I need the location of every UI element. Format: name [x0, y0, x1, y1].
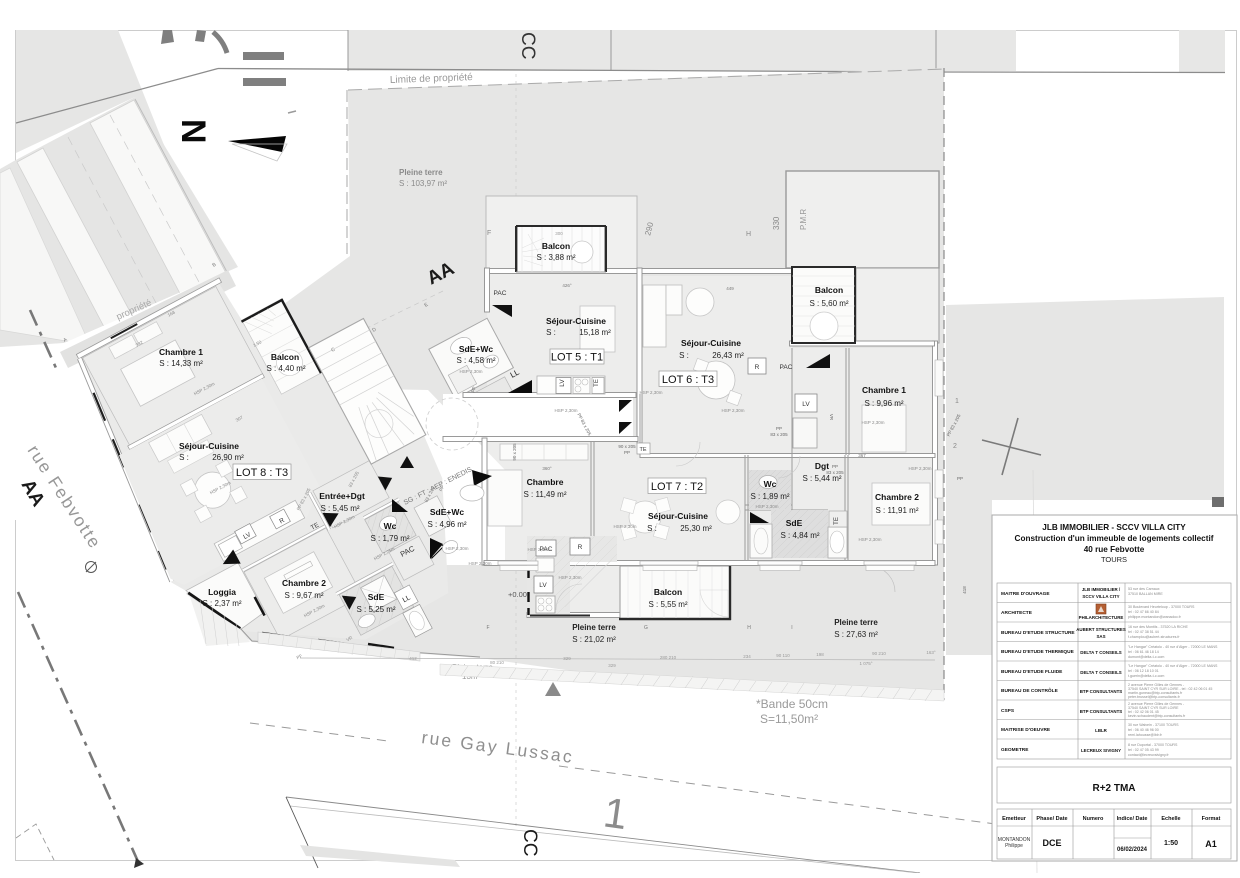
svg-text:449: 449 — [726, 286, 734, 291]
svg-text:HSP 2,30m: HSP 2,30m — [460, 369, 483, 374]
svg-text:198: 198 — [816, 652, 824, 657]
svg-text:CC: CC — [517, 32, 538, 59]
svg-text:tel : 06 61 46 18 14: tel : 06 61 46 18 14 — [1128, 650, 1159, 654]
svg-text:S : 1,79 m²: S : 1,79 m² — [370, 534, 409, 543]
svg-text:PAC: PAC — [494, 290, 507, 297]
svg-text:DELTA T CONSEILS: DELTA T CONSEILS — [1080, 670, 1121, 675]
svg-text:S : 21,02 m²: S : 21,02 m² — [572, 635, 616, 644]
svg-text:Dgt: Dgt — [815, 461, 829, 471]
svg-text:Séjour-Cuisine: Séjour-Cuisine — [546, 316, 606, 326]
svg-text:Format: Format — [1202, 816, 1221, 822]
svg-text:S : 1,89 m²: S : 1,89 m² — [750, 492, 789, 501]
svg-text:15,18 m²: 15,18 m² — [579, 328, 611, 337]
svg-text:HSP 2,30m: HSP 2,30m — [862, 420, 885, 425]
svg-text:tel : 06 40 46 96 00: tel : 06 40 46 96 00 — [1128, 728, 1159, 732]
svg-text:S :: S : — [179, 453, 189, 462]
svg-text:Emetteur: Emetteur — [1002, 816, 1027, 822]
svg-text:Séjour-Cuisine: Séjour-Cuisine — [681, 338, 741, 348]
svg-text:PHILARCHITECTURE: PHILARCHITECTURE — [1079, 615, 1124, 620]
svg-text:Chambre: Chambre — [527, 477, 564, 487]
svg-text:426°: 426° — [562, 283, 572, 288]
svg-text:HSP 2,30m: HSP 2,30m — [559, 575, 582, 580]
svg-text:HSP 2,30m: HSP 2,30m — [446, 546, 469, 551]
svg-text:dumont@delta-t-c.com: dumont@delta-t-c.com — [1128, 655, 1164, 659]
svg-text:S : 9,67 m²: S : 9,67 m² — [284, 591, 323, 600]
svg-text:LECREUX SIVIGNY: LECREUX SIVIGNY — [1081, 748, 1121, 753]
svg-text:HSP 2,30m: HSP 2,30m — [528, 547, 551, 552]
svg-text:2: 2 — [953, 443, 957, 450]
svg-text:S : 5,25 m²: S : 5,25 m² — [356, 605, 395, 614]
svg-text:LOT 5 : T1: LOT 5 : T1 — [551, 352, 603, 364]
svg-text:25,30 m²: 25,30 m² — [680, 524, 712, 533]
svg-text:TE: TE — [594, 379, 600, 387]
svg-text:Indice/ Date: Indice/ Date — [1117, 816, 1148, 822]
svg-text:418: 418 — [962, 586, 967, 594]
svg-text:BUREAU D'ETUDE FLUIDE: BUREAU D'ETUDE FLUIDE — [1001, 669, 1063, 675]
svg-text:+0.00: +0.00 — [508, 590, 527, 599]
svg-text:CSPS: CSPS — [1001, 708, 1015, 714]
svg-text:TE: TE — [639, 447, 646, 453]
svg-text:Philippe: Philippe — [1005, 843, 1023, 849]
svg-text:R+2 TMA: R+2 TMA — [1092, 783, 1135, 794]
svg-text:S : 3,88 m²: S : 3,88 m² — [536, 253, 575, 262]
svg-text:tel : 06 12 18 10 01: tel : 06 12 18 10 01 — [1128, 669, 1159, 673]
svg-text:S : 14,33 m²: S : 14,33 m² — [159, 359, 203, 368]
svg-text:ARCHITECTE: ARCHITECTE — [1001, 610, 1033, 616]
svg-text:S : 11,49 m²: S : 11,49 m² — [524, 490, 567, 499]
svg-text:N: N — [174, 119, 212, 144]
svg-text:53 rue des Carnaux: 53 rue des Carnaux — [1128, 587, 1160, 591]
svg-text:330: 330 — [772, 216, 781, 230]
svg-text:HSP 2,30m: HSP 2,30m — [640, 390, 663, 395]
svg-text:R: R — [578, 544, 583, 551]
svg-text:BUREAU D'ETUDE STRUCTURE: BUREAU D'ETUDE STRUCTURE — [1001, 630, 1075, 636]
svg-text:tel : 02 47 66 40 84: tel : 02 47 66 40 84 — [1128, 610, 1159, 614]
svg-text:PP: PP — [624, 450, 630, 455]
svg-text:PP: PP — [832, 464, 838, 469]
svg-text:SdE+Wc: SdE+Wc — [459, 344, 494, 354]
svg-text:8 rue Duportal - 37000 TOURS: 8 rue Duportal - 37000 TOURS — [1128, 743, 1178, 747]
svg-text:BUREAU D'ETUDE THERMIQUE: BUREAU D'ETUDE THERMIQUE — [1001, 649, 1075, 655]
svg-text:CC: CC — [519, 829, 540, 856]
svg-text:G: G — [644, 625, 648, 631]
svg-text:TE: TE — [834, 517, 840, 525]
svg-text:90 x 205: 90 x 205 — [618, 444, 636, 449]
svg-text:tel : 02 47 05 43 99: tel : 02 47 05 43 99 — [1128, 748, 1159, 752]
svg-text:SdE: SdE — [368, 592, 385, 602]
svg-text:BTP CONSULTANTS: BTP CONSULTANTS — [1080, 709, 1123, 714]
svg-text:80 210: 80 210 — [490, 660, 504, 665]
svg-text:F: F — [486, 625, 489, 631]
svg-text:S : 5,55 m²: S : 5,55 m² — [648, 600, 687, 609]
svg-text:S : 4,96 m²: S : 4,96 m² — [427, 520, 466, 529]
svg-text:DELTA T CONSEILS: DELTA T CONSEILS — [1080, 650, 1121, 655]
svg-text:I: I — [791, 625, 792, 631]
svg-text:contact@lecreuxsivigny.fr: contact@lecreuxsivigny.fr — [1128, 753, 1170, 757]
svg-text:LBLR: LBLR — [1095, 728, 1108, 733]
svg-text:06/02/2024: 06/02/2024 — [1117, 847, 1148, 853]
svg-text:83 x 205: 83 x 205 — [770, 432, 788, 437]
svg-text:PAC: PAC — [780, 364, 793, 371]
svg-text:BTP CONSULTANTS: BTP CONSULTANTS — [1080, 689, 1123, 694]
svg-text:SAS: SAS — [1096, 634, 1105, 639]
svg-text:VR: VR — [829, 414, 834, 421]
svg-text:S : 4,40 m²: S : 4,40 m² — [266, 364, 305, 373]
svg-text:26,43 m²: 26,43 m² — [712, 351, 744, 360]
svg-text:S : 9,96 m²: S : 9,96 m² — [864, 399, 903, 408]
svg-text:1 075°: 1 075° — [859, 661, 872, 666]
svg-text:S=11,50m²: S=11,50m² — [760, 712, 818, 726]
svg-text:Pleine terre: Pleine terre — [399, 168, 443, 177]
svg-text:S : 5,45 m²: S : 5,45 m² — [320, 504, 359, 513]
svg-text:S : 103,97 m²: S : 103,97 m² — [399, 179, 447, 188]
svg-text:P.M.R: P.M.R — [799, 209, 808, 230]
svg-text:S : 5,60 m²: S : 5,60 m² — [809, 299, 848, 308]
svg-text:HSP 2,30m: HSP 2,30m — [469, 561, 492, 566]
svg-text:HSP 2,30m: HSP 2,30m — [756, 504, 779, 509]
svg-text:280 210: 280 210 — [660, 655, 677, 660]
svg-text:philippe.montandon@wanadoo.fr: philippe.montandon@wanadoo.fr — [1128, 615, 1182, 619]
svg-text:300: 300 — [555, 231, 563, 236]
svg-text:90 x 205: 90 x 205 — [512, 443, 517, 461]
svg-text:Balcon: Balcon — [542, 241, 570, 251]
svg-text:Phase/ Date: Phase/ Date — [1036, 816, 1067, 822]
svg-text:90 210: 90 210 — [872, 651, 886, 656]
svg-text:f.champlou@aubert-structures.f: f.champlou@aubert-structures.fr — [1128, 635, 1180, 639]
svg-text:SdE+Wc: SdE+Wc — [430, 507, 465, 517]
svg-text:Balcon: Balcon — [815, 285, 843, 295]
svg-text:234: 234 — [743, 654, 751, 659]
svg-text:329: 329 — [563, 656, 571, 661]
svg-text:S : 4,58 m²: S : 4,58 m² — [456, 356, 495, 365]
svg-text:HSP 2,30m: HSP 2,30m — [909, 466, 932, 471]
svg-text:tel : 02 47 38 51 44: tel : 02 47 38 51 44 — [1128, 630, 1159, 634]
svg-text:HSP 2,30m: HSP 2,30m — [555, 408, 578, 413]
svg-text:SdE: SdE — [786, 518, 803, 528]
svg-text:Chambre 1: Chambre 1 — [862, 385, 906, 395]
svg-text:TOURS: TOURS — [1101, 555, 1127, 564]
svg-text:"Le Hangar" Créatolo - 40 rue: "Le Hangar" Créatolo - 40 rue d'Alger - … — [1128, 645, 1218, 649]
svg-text:Wc: Wc — [384, 521, 397, 531]
svg-text:Pleine terre: Pleine terre — [834, 618, 878, 627]
svg-text:PP: PP — [957, 476, 963, 481]
svg-text:360°: 360° — [542, 466, 552, 471]
svg-text:A1: A1 — [1205, 839, 1217, 849]
svg-text:S :: S : — [647, 524, 657, 533]
svg-text:LOT 6 : T3: LOT 6 : T3 — [662, 374, 714, 386]
svg-text:S : 5,44 m²: S : 5,44 m² — [802, 474, 841, 483]
svg-text:412: 412 — [409, 656, 417, 661]
svg-text:PP: PP — [776, 426, 782, 431]
svg-text:"Le Hangar" Créatolo - 40 rue: "Le Hangar" Créatolo - 40 rue d'Alger - … — [1128, 664, 1218, 668]
svg-text:37510 BALLAN MIRE: 37510 BALLAN MIRE — [1128, 592, 1163, 596]
svg-text:Echelle: Echelle — [1161, 816, 1180, 822]
svg-text:SCCV VILLA CITY: SCCV VILLA CITY — [1082, 594, 1119, 599]
svg-text:MAITRE D'OUVRAGE: MAITRE D'OUVRAGE — [1001, 591, 1050, 597]
svg-text:HSP 2,30m: HSP 2,30m — [859, 537, 882, 542]
svg-text:163°: 163° — [926, 650, 936, 655]
svg-text:Chambre 1: Chambre 1 — [159, 347, 203, 357]
svg-text:Séjour-Cuisine: Séjour-Cuisine — [648, 511, 708, 521]
svg-text:Construction d'un immeuble de: Construction d'un immeuble de logements … — [1015, 534, 1214, 543]
svg-text:GEOMETRE: GEOMETRE — [1001, 747, 1029, 753]
svg-text:LV: LV — [559, 379, 566, 387]
svg-text:HSP 2,30m: HSP 2,30m — [722, 408, 745, 413]
svg-text:S : 4,84 m²: S : 4,84 m² — [780, 531, 819, 540]
svg-text:S : 27,63 m²: S : 27,63 m² — [834, 630, 878, 639]
svg-text:S :: S : — [679, 351, 689, 360]
svg-text:Entrée+Dgt: Entrée+Dgt — [319, 491, 365, 501]
svg-text:AUBERT STRUCTURES: AUBERT STRUCTURES — [1076, 627, 1126, 632]
svg-text:LV: LV — [539, 582, 547, 589]
svg-text:30 Boulevard Heurteloup - 3700: 30 Boulevard Heurteloup - 37000 TOURS — [1128, 605, 1195, 609]
svg-text:40 rue Febvotte: 40 rue Febvotte — [1084, 545, 1145, 554]
svg-text:LOT 7 : T2: LOT 7 : T2 — [651, 481, 703, 493]
svg-text:Séjour-Cuisine: Séjour-Cuisine — [179, 441, 239, 451]
svg-text:Numero: Numero — [1083, 816, 1104, 822]
svg-text:S : 11,91 m²: S : 11,91 m² — [876, 506, 919, 515]
svg-text:Wc: Wc — [764, 479, 777, 489]
svg-text:R: R — [755, 364, 760, 371]
svg-text:Chambre 2: Chambre 2 — [875, 492, 919, 502]
svg-text:1: 1 — [955, 398, 959, 405]
svg-text:remi.lahousse@lblr.fr: remi.lahousse@lblr.fr — [1128, 733, 1163, 737]
svg-text:367: 367 — [858, 453, 866, 458]
svg-text:Loggia: Loggia — [208, 587, 236, 597]
svg-text:16 rue des Montils - 37520 LA: 16 rue des Montils - 37520 LA RICHE — [1128, 625, 1189, 629]
svg-text:26,90 m²: 26,90 m² — [212, 453, 244, 462]
svg-text:Chambre 2: Chambre 2 — [282, 578, 326, 588]
svg-text:*Bande 50cm: *Bande 50cm — [756, 697, 828, 711]
svg-text:F: F — [487, 230, 491, 237]
svg-text:Pleine terre: Pleine terre — [572, 623, 616, 632]
svg-text:H: H — [746, 231, 751, 238]
svg-text:MAITRISE D'OEUVRE: MAITRISE D'OEUVRE — [1001, 727, 1051, 733]
svg-text:peter.brussel@btp-consultants.: peter.brussel@btp-consultants.fr — [1128, 695, 1181, 699]
svg-text:Balcon: Balcon — [271, 352, 299, 362]
svg-text:H: H — [747, 625, 751, 631]
svg-text:kevin.schaudent@btp-consultant: kevin.schaudent@btp-consultants.fr — [1128, 714, 1186, 718]
svg-text:LV: LV — [802, 401, 810, 408]
svg-text:JLB IMMOBILIER /: JLB IMMOBILIER / — [1082, 587, 1121, 592]
svg-text:S :: S : — [546, 328, 556, 337]
svg-text:1:50: 1:50 — [1164, 840, 1178, 847]
svg-text:90 110: 90 110 — [776, 653, 790, 658]
svg-text:DCE: DCE — [1042, 838, 1061, 848]
svg-text:HSP 2,30m: HSP 2,30m — [614, 524, 637, 529]
svg-text:JLB IMMOBILIER - SCCV VILLA CI: JLB IMMOBILIER - SCCV VILLA CITY — [1042, 523, 1186, 532]
svg-text:S : 2,37 m²: S : 2,37 m² — [202, 599, 241, 608]
svg-text:30 rue Walvein - 37100 TOURS: 30 rue Walvein - 37100 TOURS — [1128, 723, 1179, 727]
svg-text:LOT 8 : T3: LOT 8 : T3 — [236, 467, 288, 479]
svg-text:329: 329 — [608, 663, 616, 668]
svg-text:Balcon: Balcon — [654, 587, 682, 597]
svg-text:t.guerin@delta-t-c.com: t.guerin@delta-t-c.com — [1128, 674, 1164, 678]
